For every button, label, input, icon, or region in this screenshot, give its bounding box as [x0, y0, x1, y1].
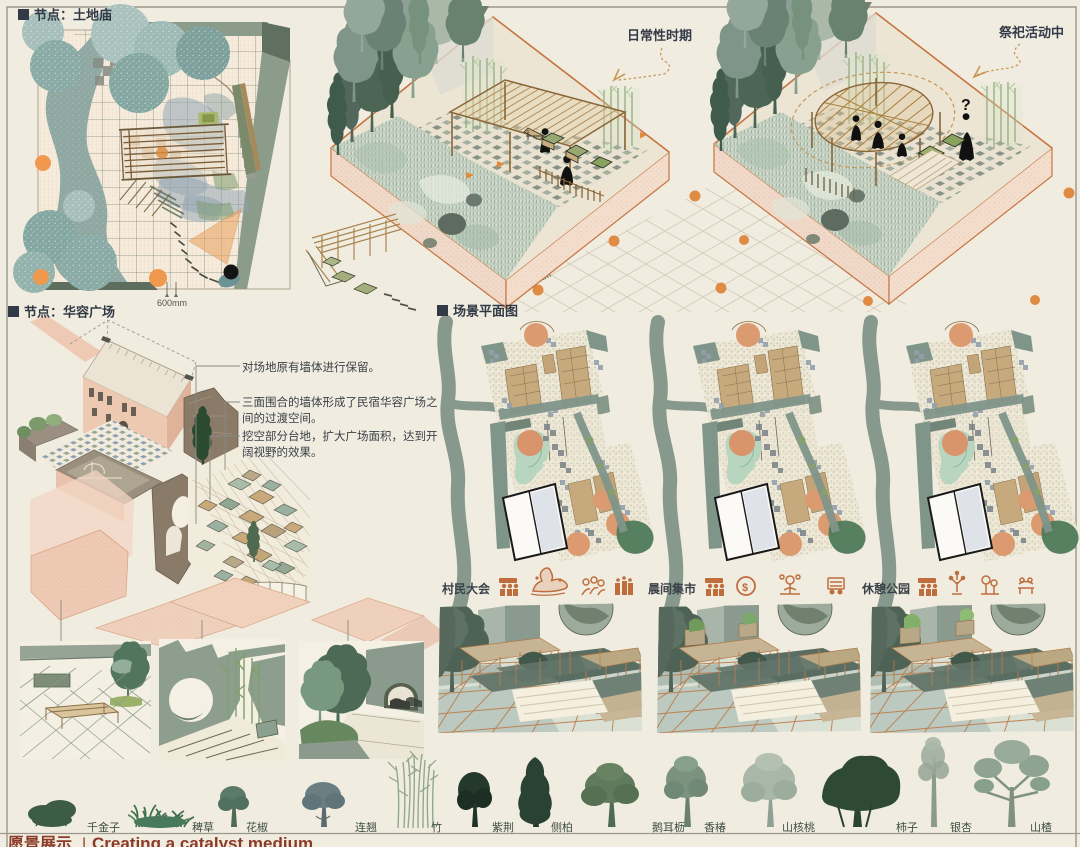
svg-text:千金子: 千金子 — [87, 820, 120, 834]
svg-text:稗草: 稗草 — [192, 820, 214, 834]
svg-text:侧柏: 侧柏 — [551, 820, 573, 834]
svg-text:挖空部分台地，扩大广场面积，达到开: 挖空部分台地，扩大广场面积，达到开 — [242, 429, 438, 443]
svg-text:鹅耳枥: 鹅耳枥 — [652, 820, 685, 834]
svg-text:|: | — [82, 836, 86, 847]
svg-text:愿景展示: 愿景展示 — [8, 835, 72, 847]
svg-text:节点：土地庙: 节点：土地庙 — [34, 8, 112, 23]
svg-text:节点：华容广场: 节点：华容广场 — [24, 305, 115, 320]
svg-text:紫荆: 紫荆 — [492, 821, 514, 834]
svg-text:晨间集市: 晨间集市 — [648, 581, 696, 596]
svg-text:花椒: 花椒 — [246, 820, 268, 834]
svg-text:阔视野的效果。: 阔视野的效果。 — [242, 445, 323, 459]
svg-text:?: ? — [961, 97, 971, 114]
svg-text:银杏: 银杏 — [950, 820, 972, 834]
svg-text:Creating a catalyst medium: Creating a catalyst medium — [92, 834, 313, 847]
svg-text:对场地原有墙体进行保留。: 对场地原有墙体进行保留。 — [242, 360, 380, 374]
svg-text:间的过渡空间。: 间的过渡空间。 — [242, 411, 323, 425]
svg-text:山楂: 山楂 — [1030, 820, 1052, 834]
svg-text:祭祀活动中: 祭祀活动中 — [998, 25, 1064, 40]
svg-text:连翘: 连翘 — [355, 821, 377, 834]
svg-text:三面围合的墙体形成了民宿华容广场之: 三面围合的墙体形成了民宿华容广场之 — [242, 395, 438, 409]
svg-text:村民大会: 村民大会 — [442, 581, 491, 596]
svg-text:$: $ — [742, 582, 748, 594]
svg-text:柿子: 柿子 — [896, 820, 918, 834]
svg-text:竹: 竹 — [431, 820, 442, 834]
svg-text:600mm: 600mm — [157, 298, 187, 308]
svg-text:休憩公园: 休憩公园 — [861, 581, 910, 596]
svg-text:山核桃: 山核桃 — [782, 820, 815, 834]
svg-text:场景平面图: 场景平面图 — [453, 304, 518, 319]
svg-text:日常性时期: 日常性时期 — [627, 28, 692, 43]
svg-text:香椿: 香椿 — [704, 821, 726, 834]
